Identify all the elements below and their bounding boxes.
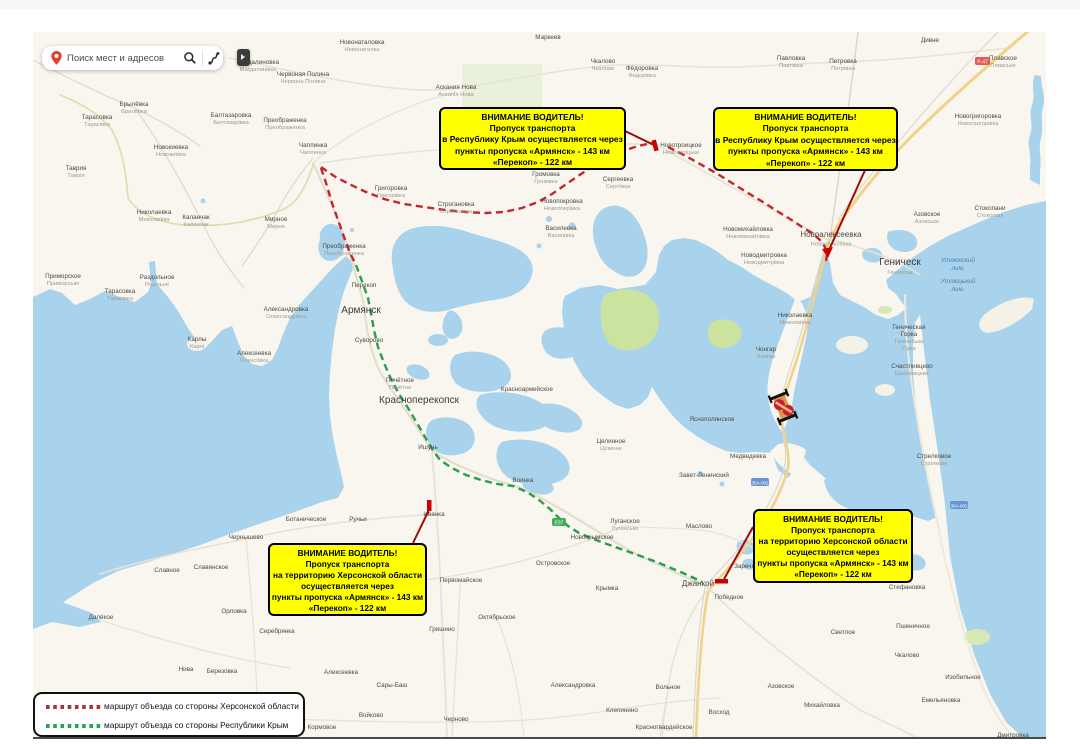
- svg-text:Черново: Черново: [444, 716, 469, 723]
- svg-text:Ботаническое: Ботаническое: [286, 516, 327, 523]
- svg-text:Дивне: Дивне: [921, 37, 940, 44]
- svg-text:Перекоп: Перекоп: [352, 282, 377, 289]
- svg-text:Маркеев: Маркеев: [535, 34, 561, 41]
- svg-text:Красногвардейское: Красногвардейское: [636, 723, 693, 731]
- svg-text:Первомайское: Первомайское: [440, 576, 483, 584]
- svg-text:Далёкое: Далёкое: [89, 614, 114, 621]
- svg-text:Алексеевка: Алексеевка: [324, 669, 359, 676]
- svg-text:Ручьи: Ручьи: [349, 516, 367, 523]
- svg-text:Яснополянское: Яснополянское: [690, 416, 735, 423]
- svg-text:Новокрымское: Новокрымское: [571, 534, 614, 541]
- svg-text:ПреображенкаПреображенка: ПреображенкаПреображенка: [322, 242, 366, 257]
- svg-text:Островское: Островское: [536, 560, 571, 567]
- svg-text:Кормовое: Кормовое: [308, 724, 337, 731]
- svg-text:Клепинино: Клепинино: [606, 707, 638, 714]
- svg-text:Серебрянка: Серебрянка: [259, 627, 295, 635]
- svg-text:Орловка: Орловка: [221, 608, 247, 615]
- svg-text:Михайловка: Михайловка: [804, 701, 840, 709]
- svg-text:Армянск: Армянск: [341, 305, 381, 316]
- svg-text:Славянское: Славянское: [194, 564, 229, 571]
- svg-text:Джанкой: Джанкой: [682, 579, 714, 588]
- svg-text:Суворово: Суворово: [355, 337, 384, 344]
- svg-text:Вольное: Вольное: [656, 684, 681, 691]
- svg-text:Нива: Нива: [179, 666, 194, 673]
- svg-text:Гришино: Гришино: [429, 626, 455, 633]
- svg-text:Чкалово: Чкалово: [895, 652, 920, 659]
- svg-text:Ишунь: Ишунь: [418, 444, 438, 451]
- svg-text:Победное: Победное: [714, 593, 744, 601]
- svg-text:Е97: Е97: [555, 521, 564, 527]
- svg-text:Светлое: Светлое: [831, 629, 856, 636]
- svg-text:35А-002: 35А-002: [950, 504, 968, 509]
- svg-text:Красноармейское: Красноармейское: [501, 385, 554, 393]
- svg-text:Октябрьское: Октябрьское: [478, 613, 516, 621]
- svg-text:Стефановка: Стефановка: [889, 584, 926, 591]
- svg-text:Березовка: Березовка: [207, 668, 238, 675]
- svg-text:Сары-Баш: Сары-Баш: [377, 682, 408, 689]
- svg-text:Изобильное: Изобильное: [945, 673, 981, 681]
- svg-text:Р-47: Р-47: [977, 60, 988, 66]
- svg-text:Пшеничное: Пшеничное: [896, 623, 930, 630]
- svg-text:Маслово: Маслово: [686, 523, 712, 530]
- svg-text:Александровка: Александровка: [551, 682, 596, 689]
- svg-text:Крымка: Крымка: [596, 585, 619, 592]
- svg-text:Азовское: Азовское: [768, 683, 795, 690]
- svg-text:Красноперекопск: Красноперекопск: [379, 395, 460, 406]
- svg-text:НовомихайловкаНовомихайлівка: НовомихайловкаНовомихайлівка: [723, 225, 773, 240]
- svg-text:Восход: Восход: [709, 709, 730, 716]
- svg-text:Войково: Войково: [359, 711, 384, 719]
- svg-text:ПреображенкаПреображенка: ПреображенкаПреображенка: [263, 116, 307, 131]
- svg-text:Воинка: Воинка: [512, 477, 534, 484]
- svg-text:35А-002: 35А-002: [751, 481, 769, 486]
- svg-text:Емельяновка: Емельяновка: [922, 697, 961, 704]
- svg-text:Медведевка: Медведевка: [730, 453, 766, 460]
- svg-text:Завет-Ленинский: Завет-Ленинский: [679, 471, 729, 479]
- svg-text:Чернышево: Чернышево: [229, 534, 264, 541]
- svg-text:Славное: Славное: [154, 567, 180, 574]
